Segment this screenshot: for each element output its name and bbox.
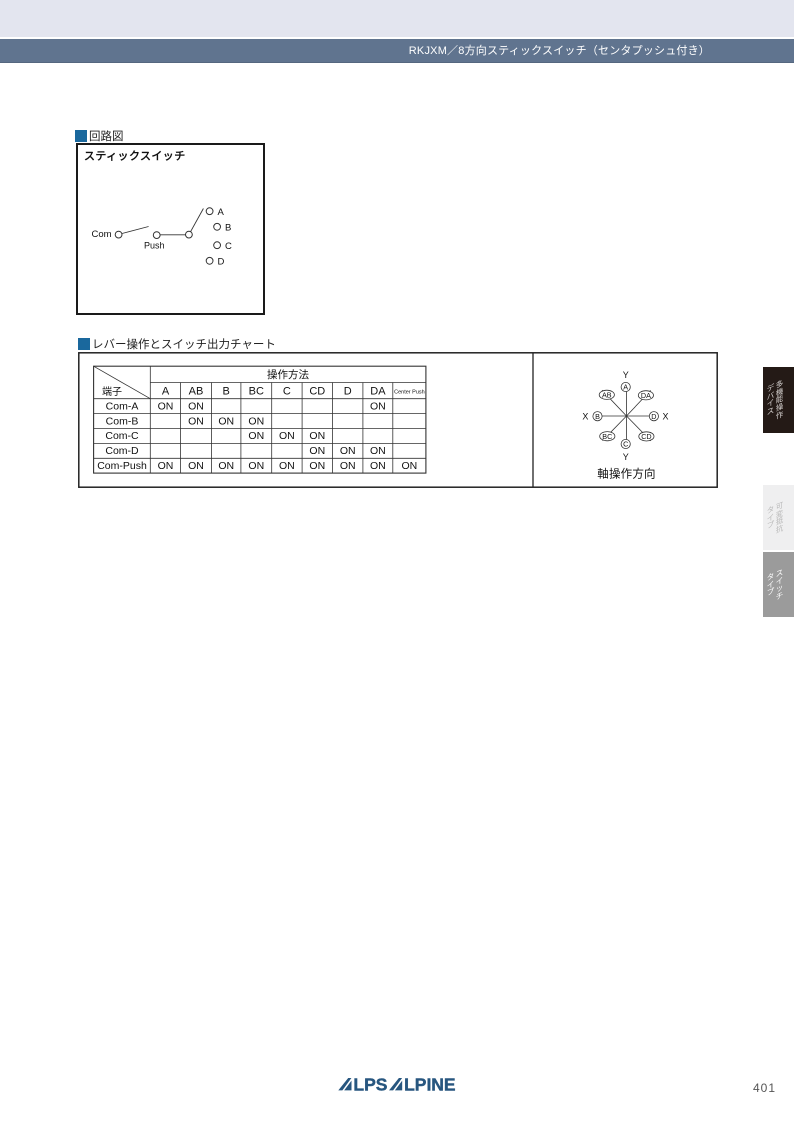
- svg-text:BC: BC: [602, 432, 612, 441]
- svg-text:ON: ON: [309, 460, 325, 472]
- svg-text:ON: ON: [279, 430, 295, 442]
- svg-text:ON: ON: [218, 415, 234, 427]
- svg-text:D: D: [344, 386, 352, 398]
- svg-text:DA: DA: [641, 391, 651, 400]
- svg-text:DA: DA: [370, 386, 386, 398]
- svg-text:BC: BC: [249, 386, 264, 398]
- svg-text:Com: Com: [92, 229, 112, 240]
- svg-text:ON: ON: [218, 460, 234, 472]
- svg-text:ON: ON: [248, 430, 264, 442]
- svg-text:ON: ON: [402, 460, 418, 472]
- svg-text:Com-C: Com-C: [105, 430, 139, 442]
- svg-text:C: C: [283, 386, 291, 398]
- svg-text:ON: ON: [188, 460, 204, 472]
- svg-text:A: A: [218, 207, 225, 218]
- svg-text:ON: ON: [309, 430, 325, 442]
- svg-text:ON: ON: [279, 460, 295, 472]
- svg-text:A: A: [162, 386, 170, 398]
- svg-text:D: D: [651, 412, 656, 421]
- svg-text:CD: CD: [641, 432, 651, 441]
- svg-text:Y: Y: [623, 370, 629, 380]
- svg-text:X: X: [662, 411, 668, 421]
- svg-text:スティックスイッチ: スティックスイッチ: [84, 150, 186, 163]
- svg-text:AB: AB: [602, 390, 612, 399]
- svg-text:C: C: [225, 241, 232, 252]
- svg-text:ON: ON: [188, 415, 204, 427]
- svg-text:C: C: [623, 440, 628, 449]
- svg-text:X: X: [582, 411, 588, 421]
- svg-text:端子: 端子: [102, 385, 122, 398]
- svg-text:操作方法: 操作方法: [267, 368, 309, 381]
- svg-text:Com-A: Com-A: [106, 400, 139, 412]
- svg-text:Y: Y: [623, 452, 629, 462]
- svg-text:B: B: [595, 412, 600, 421]
- svg-text:LPS: LPS: [353, 1077, 387, 1094]
- svg-text:ON: ON: [158, 460, 174, 472]
- svg-text:Center Push: Center Push: [394, 390, 425, 396]
- svg-text:ON: ON: [370, 400, 386, 412]
- svg-text:CD: CD: [309, 386, 325, 398]
- svg-text:ON: ON: [340, 445, 356, 457]
- svg-text:Com-Push: Com-Push: [97, 460, 147, 472]
- svg-text:ON: ON: [248, 415, 264, 427]
- svg-text:A: A: [623, 383, 628, 392]
- svg-text:ON: ON: [248, 460, 264, 472]
- svg-text:B: B: [223, 386, 230, 398]
- svg-text:Com-D: Com-D: [105, 445, 139, 457]
- svg-text:D: D: [218, 256, 225, 267]
- svg-text:ON: ON: [188, 400, 204, 412]
- svg-text:Push: Push: [144, 241, 165, 251]
- svg-text:ON: ON: [370, 445, 386, 457]
- svg-text:B: B: [225, 222, 231, 233]
- svg-text:ON: ON: [370, 460, 386, 472]
- svg-text:AB: AB: [189, 386, 204, 398]
- svg-text:LPINE: LPINE: [404, 1077, 456, 1094]
- svg-text:Com-B: Com-B: [106, 415, 139, 427]
- svg-text:ON: ON: [158, 400, 174, 412]
- svg-text:ON: ON: [340, 460, 356, 472]
- svg-text:軸操作方向: 軸操作方向: [597, 467, 656, 481]
- svg-text:ON: ON: [309, 445, 325, 457]
